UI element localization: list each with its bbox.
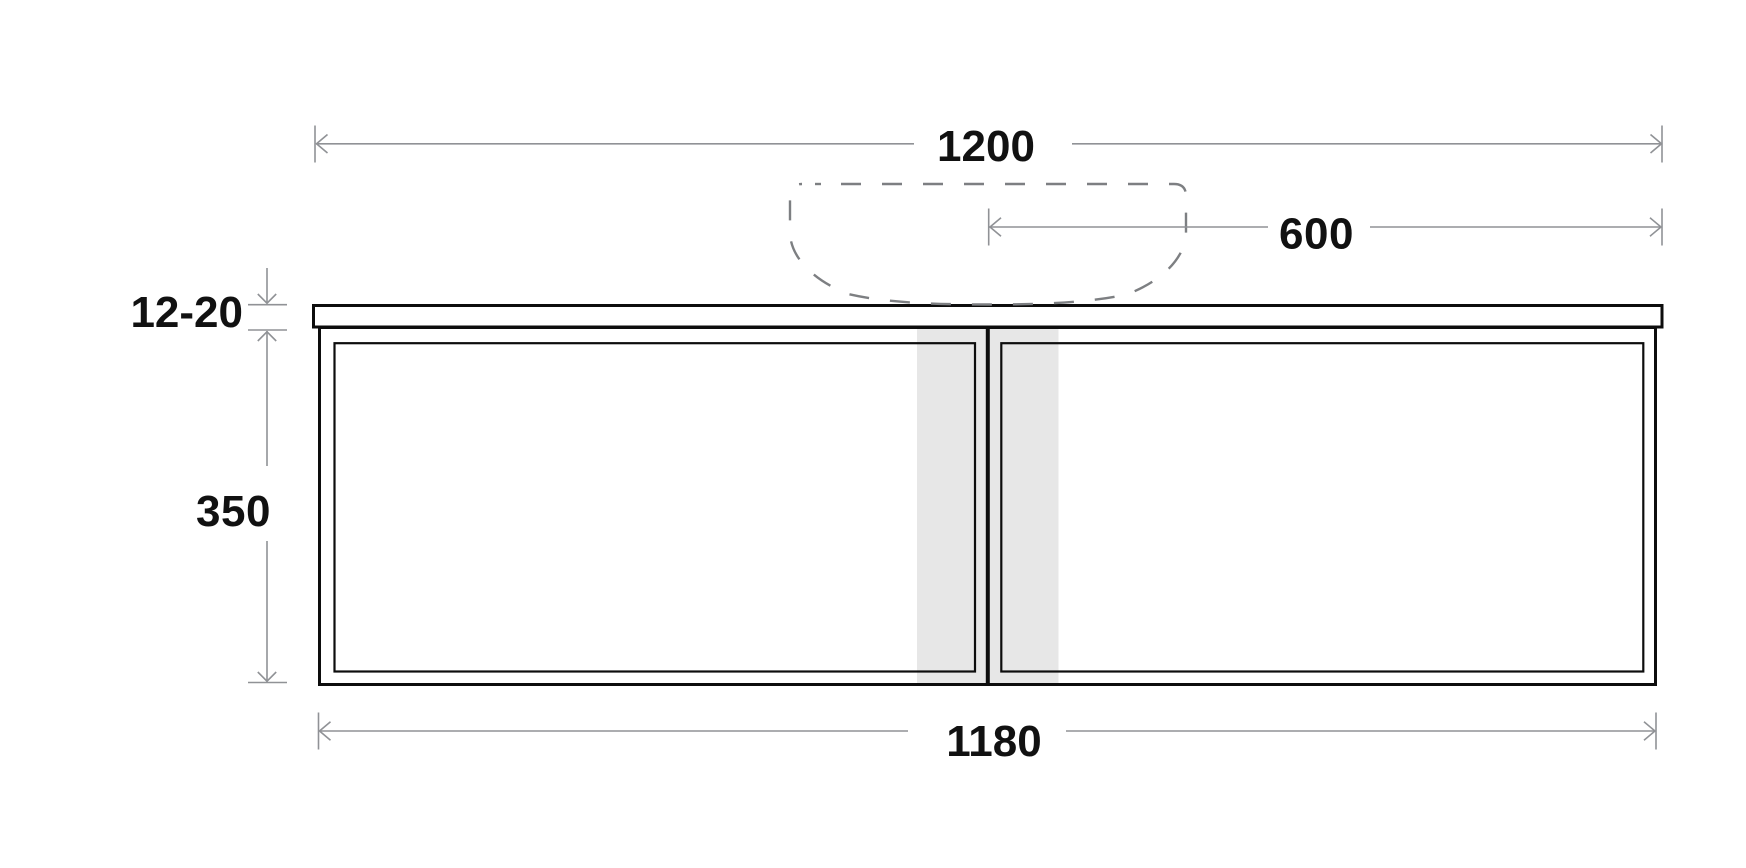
svg-text:350: 350 <box>196 487 271 536</box>
svg-text:600: 600 <box>1279 209 1354 258</box>
svg-text:1180: 1180 <box>946 717 1041 766</box>
svg-text:1200: 1200 <box>937 122 1035 171</box>
svg-text:12-20: 12-20 <box>130 288 243 337</box>
